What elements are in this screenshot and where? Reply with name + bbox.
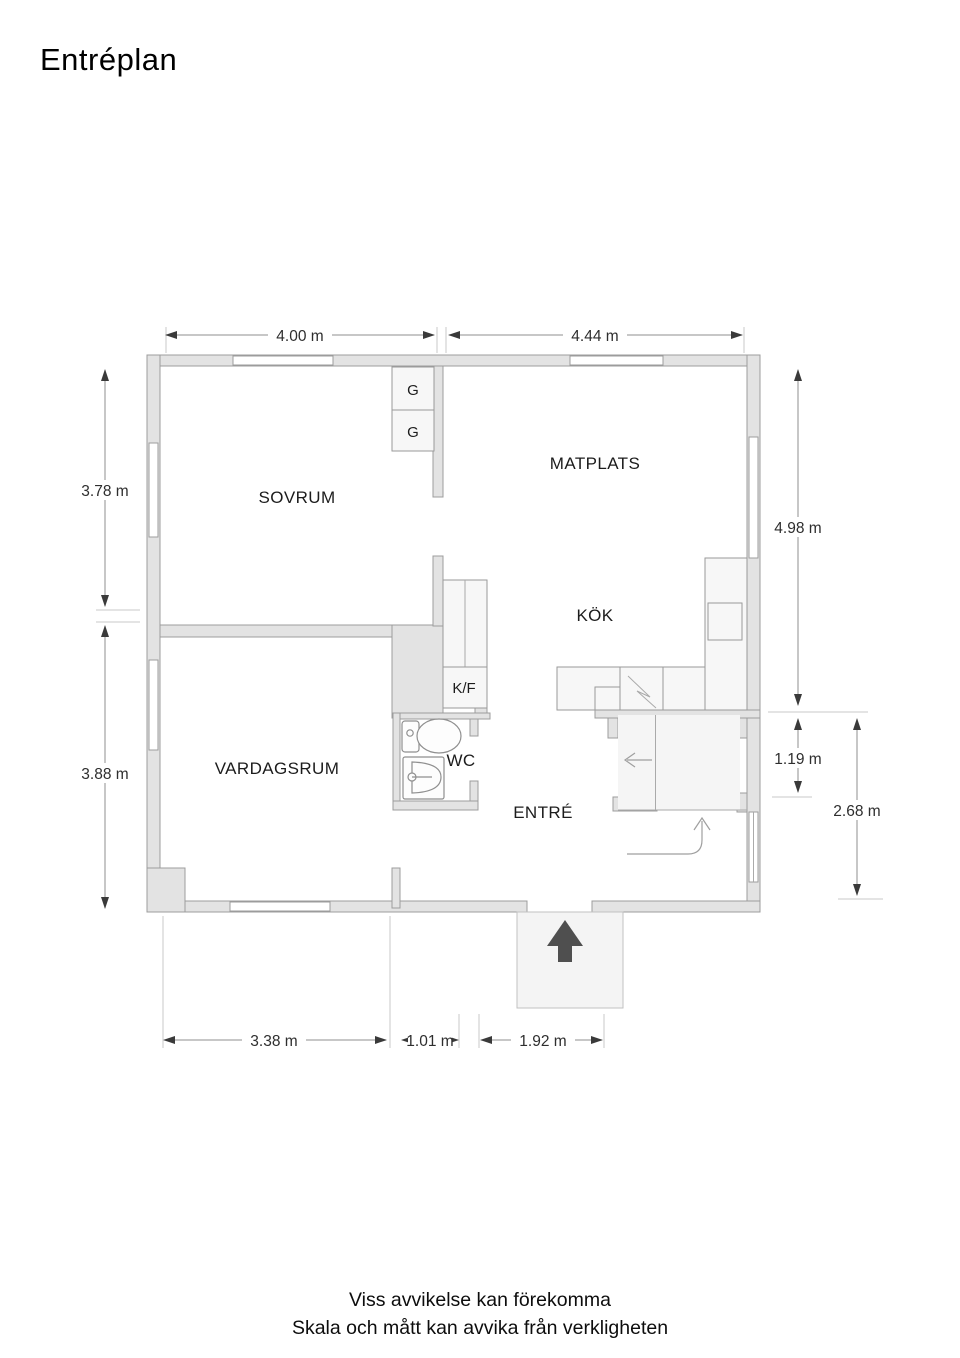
wall-segment (592, 901, 760, 912)
wc-wall (470, 781, 478, 802)
fridge-freezer-label: K/F (452, 680, 475, 697)
window (149, 660, 158, 750)
counter-step (595, 687, 620, 710)
floor-plan-drawing: G G K/F (0, 0, 960, 1358)
room-label-sovrum: SOVRUM (258, 488, 335, 507)
vestibule (618, 715, 747, 810)
dimension-label: 3.88 m (81, 766, 128, 783)
wall-corner-block (147, 868, 185, 912)
room-label-wc: WC (446, 751, 475, 770)
window (149, 443, 158, 537)
sink-icon (403, 757, 444, 799)
dimension-left-1: 3.78 m (75, 370, 140, 610)
wall-segment (608, 718, 618, 738)
kitchen-counter (557, 558, 747, 710)
wall-segment (147, 901, 527, 912)
toilet-icon (402, 719, 461, 753)
fridge-freezer-unit: K/F (443, 580, 487, 708)
floor-plan-page: Entréplan (0, 0, 960, 1358)
dimension-label: 3.78 m (81, 483, 128, 500)
dimension-bottom-3: 1.92 m (479, 1014, 604, 1050)
wc-wall (393, 713, 490, 719)
window (749, 437, 758, 558)
window (230, 902, 330, 911)
wc-wall (393, 801, 478, 810)
dimension-bottom-2: 1.01 m (402, 1014, 459, 1050)
room-label-kok: KÖK (576, 606, 613, 625)
dimension-left-2: 3.88 m (75, 622, 140, 908)
room-label-matplats: MATPLATS (550, 454, 640, 473)
dimension-label: 4.98 m (774, 520, 821, 537)
flow-arrow-icon (627, 818, 710, 854)
dimension-label: 3.38 m (250, 1033, 297, 1050)
wardrobe-label: G (407, 382, 419, 399)
room-label-entre: ENTRÉ (513, 803, 573, 822)
dimension-right-1: 4.98 m (768, 370, 868, 712)
dimension-label: 4.00 m (276, 328, 323, 345)
disclaimer-line-2: Skala och mått kan avvika från verklighe… (0, 1314, 960, 1342)
window (570, 356, 663, 365)
wc-wall (470, 719, 478, 736)
dimension-label: 4.44 m (571, 328, 618, 345)
entrance-porch (517, 912, 623, 1008)
disclaimer-line-1: Viss avvikelse kan förekomma (0, 1286, 960, 1314)
dimension-right-2: 1.19 m (768, 719, 828, 797)
wc-wall (393, 713, 400, 810)
disclaimer: Viss avvikelse kan förekomma Skala och m… (0, 1286, 960, 1342)
room-label-vardagsrum: VARDAGSRUM (215, 759, 340, 778)
vestibule-floor (618, 715, 740, 810)
wall-segment (392, 625, 443, 718)
dimension-top-2: 4.44 m (446, 325, 744, 353)
dimension-label: 1.19 m (774, 751, 821, 768)
dimension-label: 1.01 m (406, 1033, 453, 1050)
dimension-label: 1.92 m (519, 1033, 566, 1050)
dimension-top-1: 4.00 m (166, 325, 437, 353)
wall-segment (433, 556, 443, 626)
dimension-bottom-1: 3.38 m (163, 916, 390, 1050)
wall-segment (147, 355, 160, 912)
wardrobes: G G (392, 367, 434, 451)
wall-segment (392, 868, 400, 908)
wardrobe-label: G (407, 424, 419, 441)
window (233, 356, 333, 365)
dimension-right-3: 2.68 m (827, 719, 887, 899)
sink-unit (708, 603, 742, 640)
wall-segment (160, 625, 399, 637)
dimension-label: 2.68 m (833, 803, 880, 820)
